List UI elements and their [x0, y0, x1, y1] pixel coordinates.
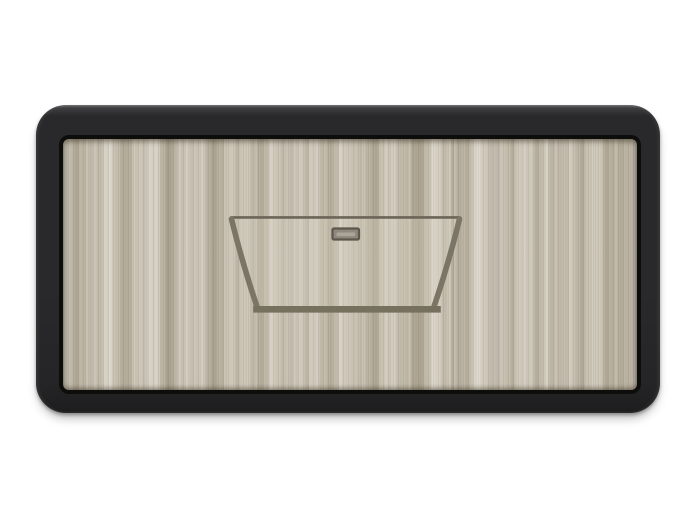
panel-frame — [36, 105, 660, 413]
product-image-stage — [0, 0, 700, 525]
wood-grain-panel — [59, 135, 641, 394]
